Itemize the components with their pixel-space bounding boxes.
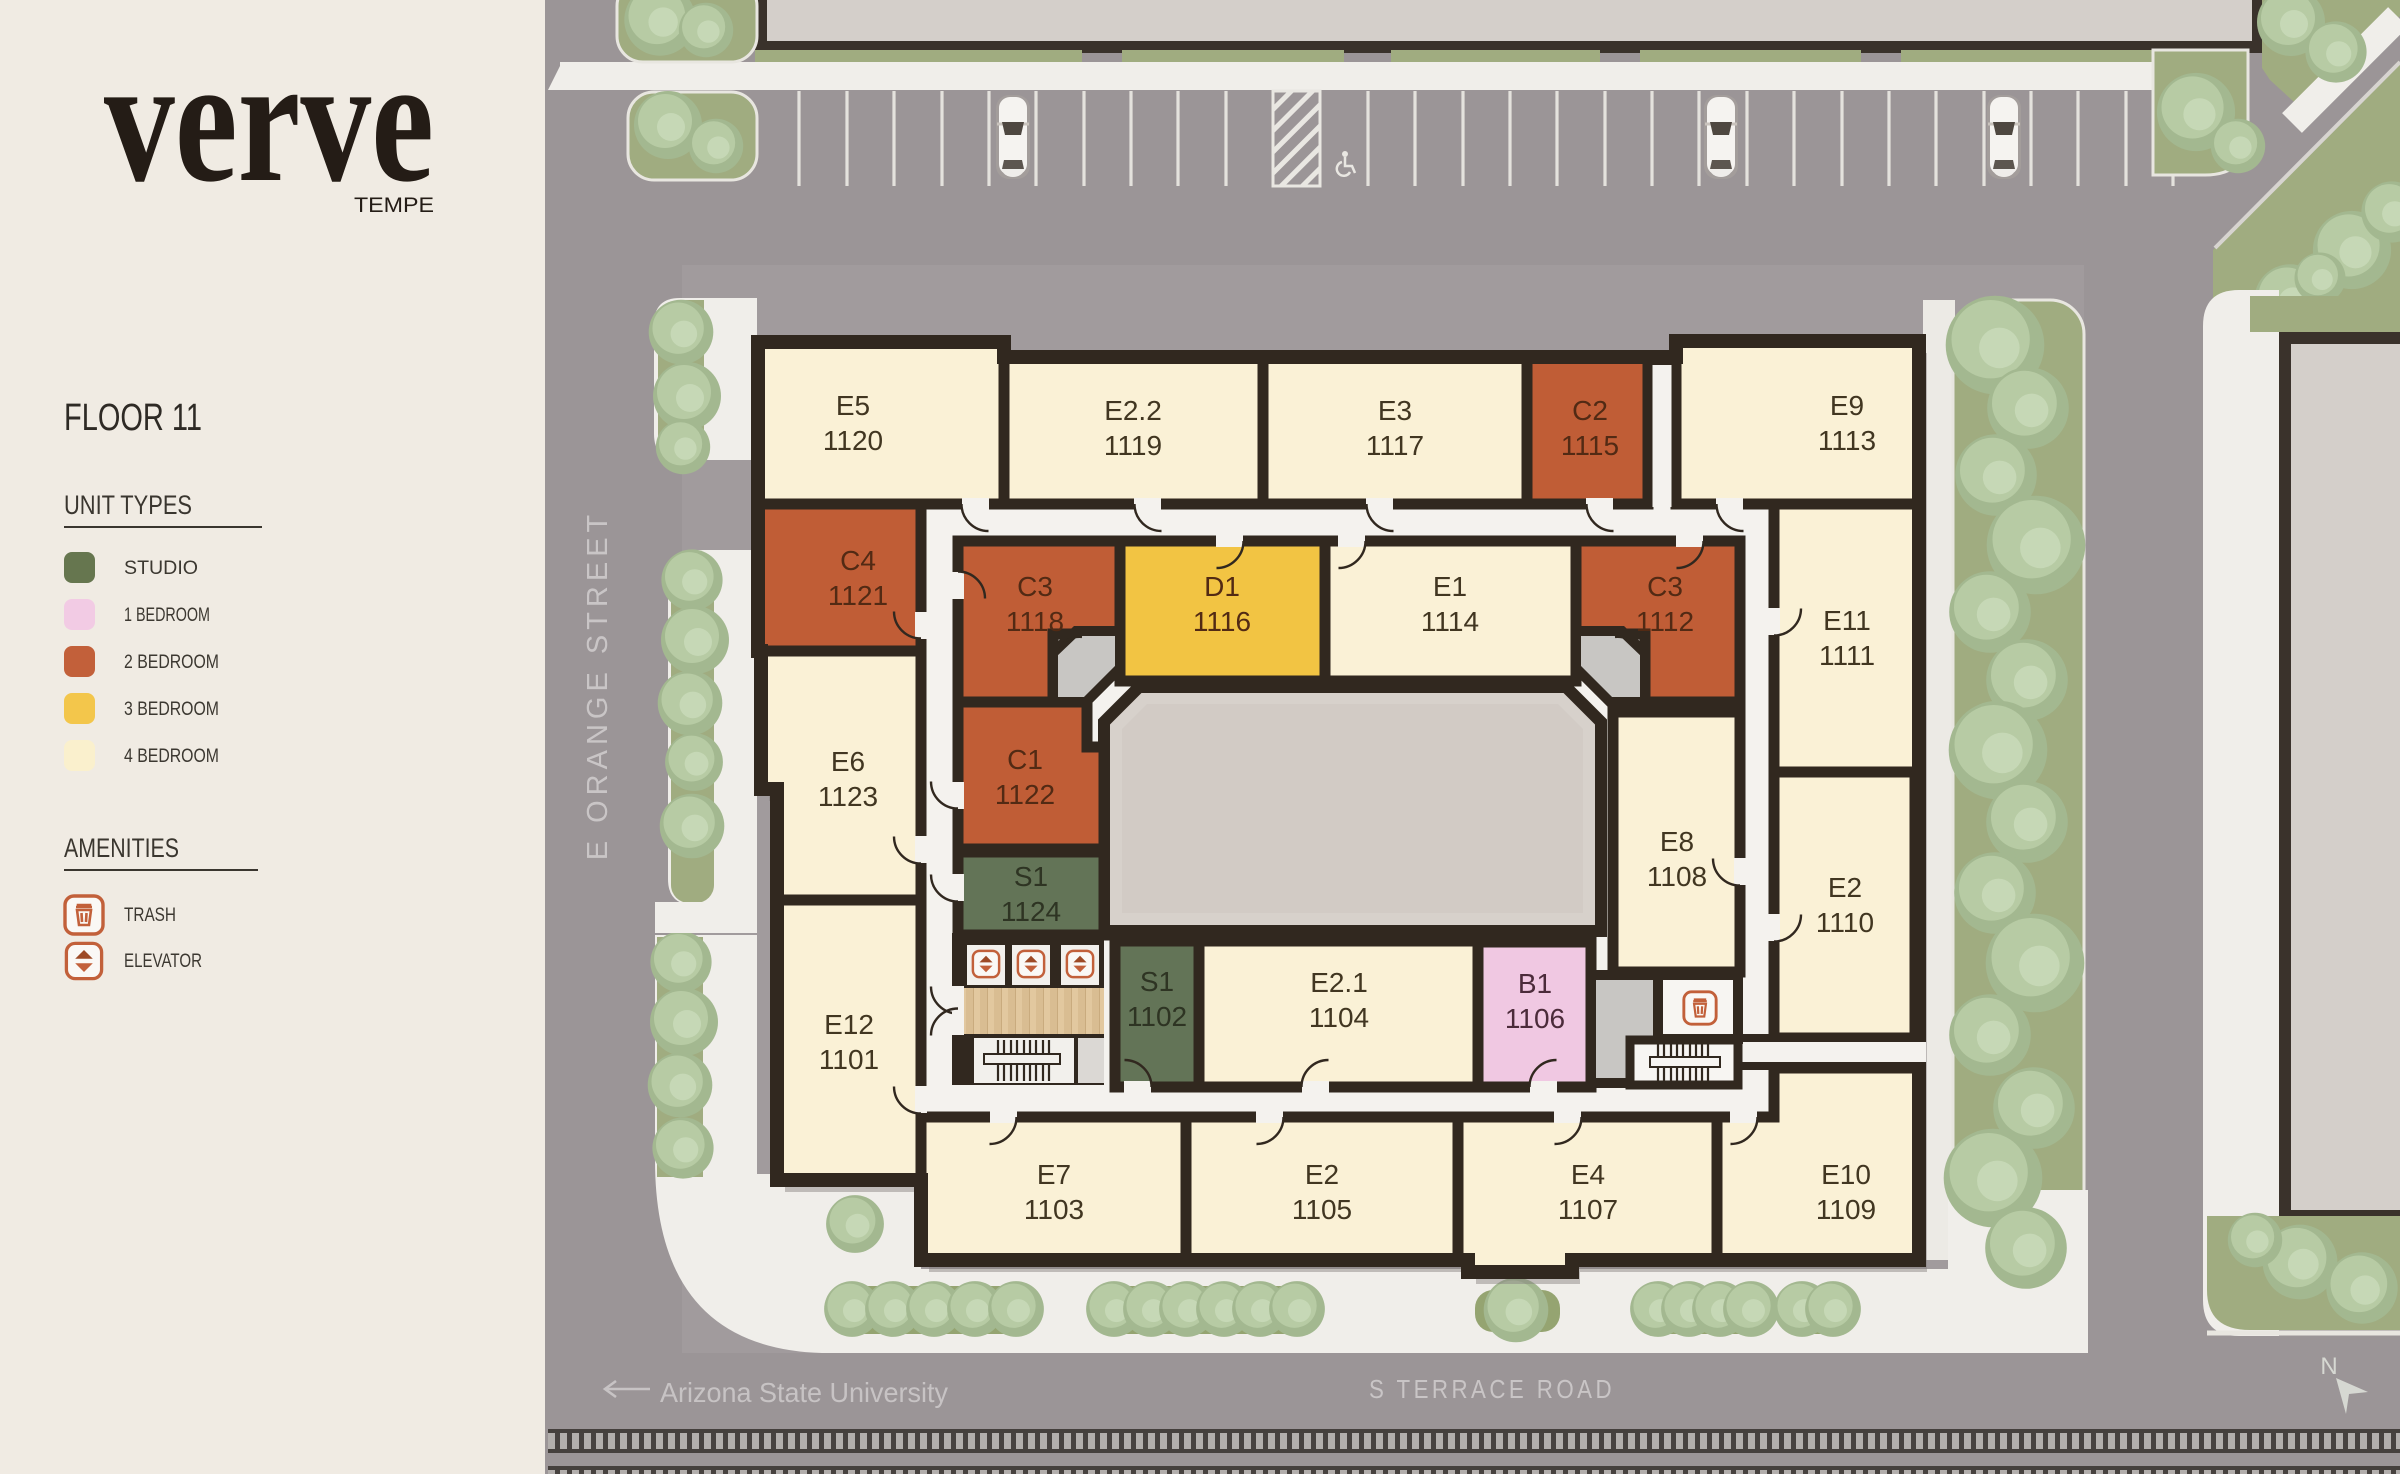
svg-text:1104: 1104 — [1309, 1002, 1369, 1033]
svg-text:1114: 1114 — [1421, 606, 1479, 637]
svg-text:E11: E11 — [1823, 605, 1871, 636]
svg-text:D1: D1 — [1204, 571, 1240, 602]
svg-text:Arizona State University: Arizona State University — [660, 1377, 948, 1408]
svg-text:E5: E5 — [836, 390, 870, 421]
svg-text:B1: B1 — [1518, 968, 1552, 999]
svg-text:C3: C3 — [1017, 571, 1053, 602]
svg-text:S1: S1 — [1140, 966, 1174, 997]
svg-text:1124: 1124 — [1001, 896, 1061, 927]
svg-text:E6: E6 — [831, 746, 865, 777]
svg-text:1122: 1122 — [995, 779, 1055, 810]
svg-text:1111: 1111 — [1819, 640, 1875, 671]
svg-text:ELEVATOR: ELEVATOR — [124, 951, 202, 972]
svg-text:E10: E10 — [1821, 1159, 1871, 1190]
svg-text:C1: C1 — [1007, 744, 1043, 775]
svg-text:E2: E2 — [1828, 872, 1862, 903]
svg-text:1106: 1106 — [1505, 1003, 1565, 1034]
svg-text:UNIT TYPES: UNIT TYPES — [64, 490, 192, 520]
svg-text:1120: 1120 — [823, 425, 883, 456]
svg-text:1 BEDROOM: 1 BEDROOM — [124, 605, 210, 626]
svg-text:E3: E3 — [1378, 395, 1412, 426]
svg-text:1121: 1121 — [828, 580, 888, 611]
svg-text:E7: E7 — [1037, 1159, 1071, 1190]
svg-text:E9: E9 — [1830, 390, 1864, 421]
svg-text:1118: 1118 — [1006, 606, 1064, 637]
svg-text:1123: 1123 — [818, 781, 878, 812]
svg-text:1112: 1112 — [1636, 606, 1694, 637]
svg-text:1117: 1117 — [1366, 430, 1424, 461]
svg-text:E1: E1 — [1433, 571, 1467, 602]
svg-text:C2: C2 — [1572, 395, 1608, 426]
svg-text:4 BEDROOM: 4 BEDROOM — [124, 746, 219, 767]
svg-text:1115: 1115 — [1561, 430, 1619, 461]
svg-text:1116: 1116 — [1193, 606, 1251, 637]
svg-text:E2: E2 — [1305, 1159, 1339, 1190]
svg-text:S TERRACE ROAD: S TERRACE ROAD — [1369, 1374, 1615, 1404]
svg-text:E2.1: E2.1 — [1310, 967, 1368, 998]
svg-text:1103: 1103 — [1024, 1194, 1084, 1225]
svg-text:E ORANGE STREET: E ORANGE STREET — [582, 510, 614, 861]
svg-text:TEMPE: TEMPE — [354, 194, 434, 217]
svg-text:E8: E8 — [1660, 826, 1694, 857]
svg-text:1105: 1105 — [1292, 1194, 1352, 1225]
svg-text:E2.2: E2.2 — [1104, 395, 1162, 426]
svg-text:1119: 1119 — [1104, 430, 1162, 461]
svg-text:1101: 1101 — [819, 1044, 879, 1075]
svg-text:N: N — [2320, 1353, 2337, 1380]
svg-text:S1: S1 — [1014, 861, 1048, 892]
svg-text:E12: E12 — [824, 1009, 874, 1040]
svg-text:1107: 1107 — [1558, 1194, 1618, 1225]
svg-text:E4: E4 — [1571, 1159, 1605, 1190]
svg-text:1109: 1109 — [1816, 1194, 1876, 1225]
svg-text:1113: 1113 — [1818, 425, 1876, 456]
svg-text:TRASH: TRASH — [124, 905, 176, 926]
svg-text:STUDIO: STUDIO — [124, 558, 198, 579]
svg-text:1102: 1102 — [1127, 1001, 1187, 1032]
svg-text:1108: 1108 — [1647, 861, 1707, 892]
svg-text:C4: C4 — [840, 545, 876, 576]
svg-text:verve: verve — [104, 20, 434, 219]
svg-text:2 BEDROOM: 2 BEDROOM — [124, 652, 219, 673]
svg-text:C3: C3 — [1647, 571, 1683, 602]
svg-text:3 BEDROOM: 3 BEDROOM — [124, 699, 219, 720]
svg-text:1110: 1110 — [1816, 907, 1874, 938]
svg-text:FLOOR 11: FLOOR 11 — [64, 397, 202, 439]
svg-text:AMENITIES: AMENITIES — [64, 833, 179, 863]
